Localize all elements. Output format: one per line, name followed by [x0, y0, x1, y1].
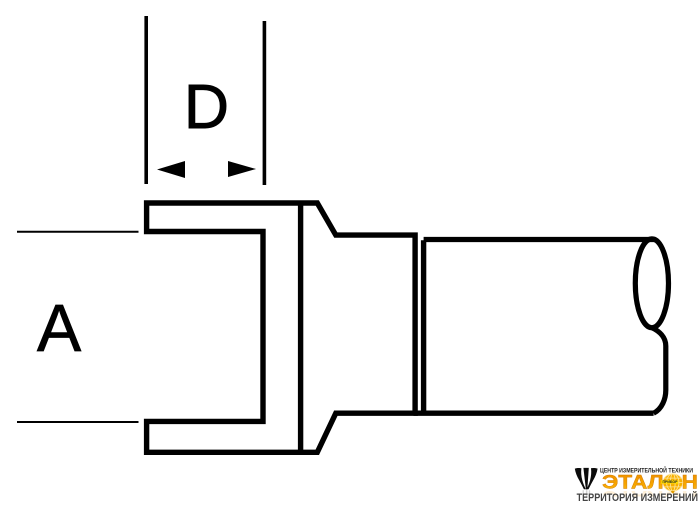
- svg-text:ТЕРРИТОРИЯ ИЗМЕРЕНИЙ: ТЕРРИТОРИЯ ИЗМЕРЕНИЙ: [577, 491, 698, 504]
- svg-text:ПРИБОР: ПРИБОР: [663, 480, 679, 484]
- svg-text:D: D: [184, 72, 229, 142]
- svg-text:A: A: [37, 292, 82, 366]
